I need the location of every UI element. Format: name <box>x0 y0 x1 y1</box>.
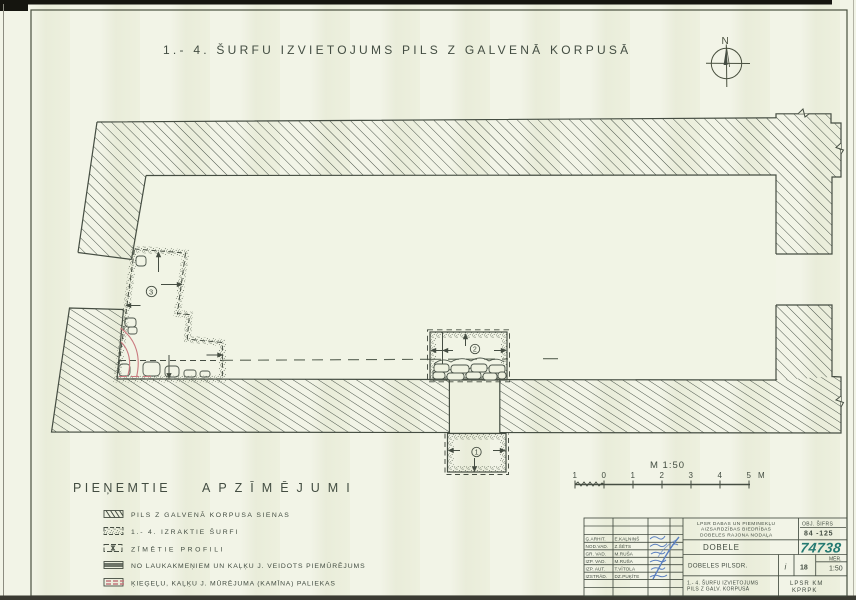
svg-text:T.VĪTOLA: T.VĪTOLA <box>615 566 636 572</box>
svg-text:3: 3 <box>689 471 694 480</box>
svg-text:PIEŅEMTIE: PIEŅEMTIE <box>73 481 171 495</box>
svg-text:IZSTRĀD.: IZSTRĀD. <box>586 573 608 579</box>
svg-text:M.RUŠA: M.RUŠA <box>615 551 634 557</box>
svg-text:NO LAUKAKMEŅIEM UN KAĻĶU J. VE: NO LAUKAKMEŅIEM UN KAĻĶU J. VEIDOTS PIEM… <box>131 562 366 570</box>
svg-text:M 1:50: M 1:50 <box>650 460 685 471</box>
svg-text:2: 2 <box>473 347 477 354</box>
svg-text:0: 0 <box>602 471 607 480</box>
svg-text:M.RUŠA: M.RUŠA <box>615 558 634 564</box>
svg-text:84 -125: 84 -125 <box>804 531 833 538</box>
svg-text:M: M <box>758 471 765 480</box>
svg-text:Ģ.ARHIT.: Ģ.ARHIT. <box>586 537 606 542</box>
svg-text:PILS Z GALVENĀ KORPUSA SIENAS: PILS Z GALVENĀ KORPUSA SIENAS <box>131 511 290 519</box>
svg-text:LPSR DABAS UN PIEMINEKĻU: LPSR DABAS UN PIEMINEKĻU <box>697 521 776 527</box>
svg-text:LPSR KM: LPSR KM <box>790 581 823 587</box>
svg-text:1.- 4. ŠURFU IZVIETOJUMS: 1.- 4. ŠURFU IZVIETOJUMS <box>687 580 759 587</box>
svg-text:3: 3 <box>149 288 153 297</box>
svg-text:ZĪMĒTIE PROFILI: ZĪMĒTIE PROFILI <box>131 546 225 554</box>
svg-text:OBJ. ŠIFRS: OBJ. ŠIFRS <box>802 521 833 528</box>
svg-text:GR. VAD.: GR. VAD. <box>586 552 607 557</box>
svg-text:N: N <box>722 36 729 47</box>
svg-text:ĶIEĢEĻU, KAĻĶU J. MŪRĒJUMA (K: ĶIEĢEĻU, KAĻĶU J. MŪRĒJUMA (KAMĪNA) PALI… <box>131 580 336 588</box>
svg-text:i: i <box>785 563 787 572</box>
svg-text:IZP. AUT.: IZP. AUT. <box>586 567 606 572</box>
svg-text:1: 1 <box>631 471 636 480</box>
svg-text:KPRPK: KPRPK <box>792 588 817 594</box>
svg-text:1:50: 1:50 <box>829 566 843 573</box>
svg-text:4: 4 <box>718 471 723 480</box>
svg-text:MĒR.: MĒR. <box>829 556 842 563</box>
svg-text:5: 5 <box>747 471 752 480</box>
svg-text:DOBELES RAJONA NODAĻA: DOBELES RAJONA NODAĻA <box>700 533 773 539</box>
svg-text:AIZSARDZĪBAS BIEDRĪBAS: AIZSARDZĪBAS BIEDRĪBAS <box>701 526 771 533</box>
svg-text:DZ.PUĶĪTE: DZ.PUĶĪTE <box>615 573 640 579</box>
svg-text:DOBELE: DOBELE <box>703 543 740 552</box>
svg-text:1.- 4. IZRAKTIE ŠURFI: 1.- 4. IZRAKTIE ŠURFI <box>131 527 239 536</box>
svg-text:IZP. VAD.: IZP. VAD. <box>586 559 606 564</box>
svg-text:NOD.VAD.: NOD.VAD. <box>586 544 609 549</box>
svg-text:18: 18 <box>800 565 808 572</box>
svg-text:1.- 4. ŠURFU IZVIETOJUMS PIL: 1.- 4. ŠURFU IZVIETOJUMS PILS Z GALVENĀ … <box>163 42 631 57</box>
svg-text:DOBELES PILSDR.: DOBELES PILSDR. <box>688 563 748 570</box>
svg-text:APZĪMĒJUMI: APZĪMĒJUMI <box>202 481 358 495</box>
svg-text:PILS Z GALV. KORPUSĀ: PILS Z GALV. KORPUSĀ <box>687 586 750 593</box>
svg-text:1: 1 <box>475 450 479 457</box>
svg-text:Z.ŠĒTS: Z.ŠĒTS <box>615 543 632 549</box>
svg-text:2: 2 <box>660 471 665 480</box>
svg-text:1: 1 <box>573 471 578 480</box>
svg-text:E.KAĻNIŅŠ: E.KAĻNIŅŠ <box>615 536 640 542</box>
svg-text:74738: 74738 <box>800 540 843 556</box>
